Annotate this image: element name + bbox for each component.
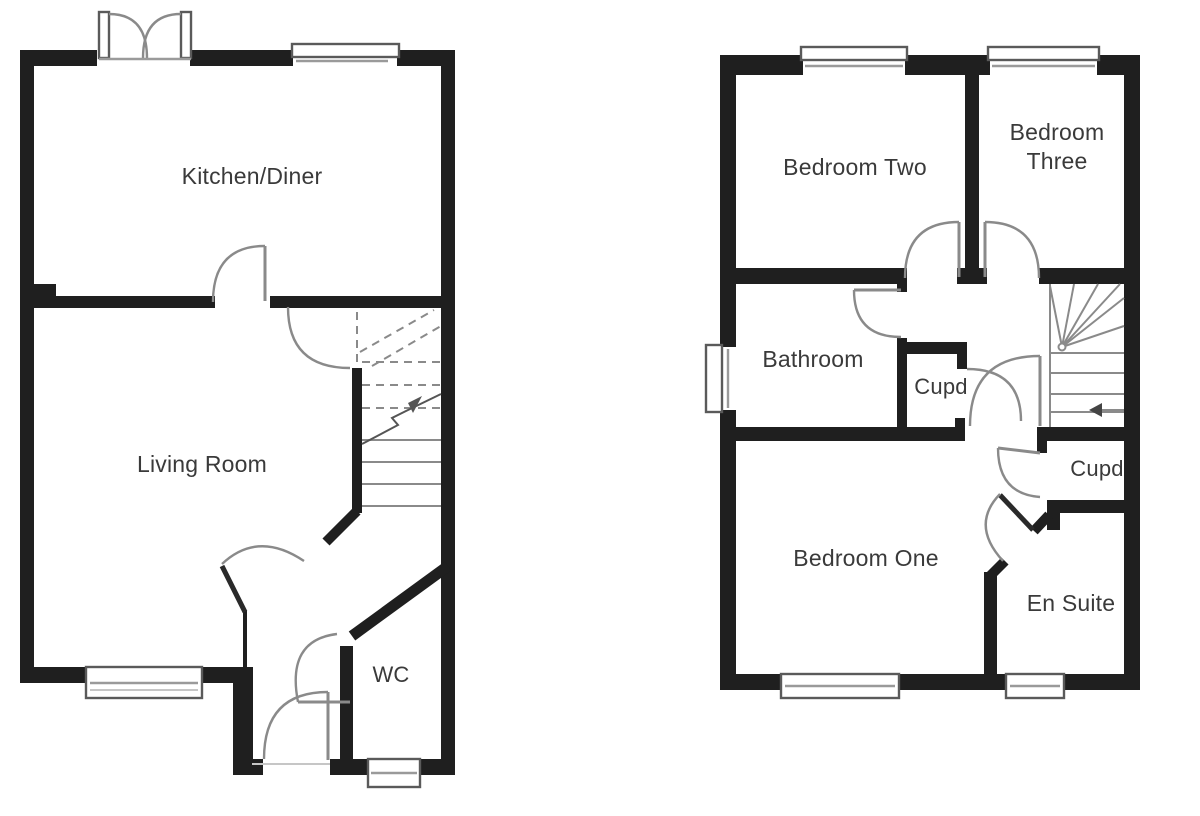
bedroom-two-door xyxy=(905,222,959,278)
first-floor-staircase xyxy=(1050,284,1124,427)
room-label-bathroom: Bathroom xyxy=(762,346,863,372)
room-label-kitchen-diner: Kitchen/Diner xyxy=(182,163,323,189)
stair-direction-arrow xyxy=(1089,403,1102,417)
room-label-bedroom-two: Bedroom Two xyxy=(783,154,927,180)
ground-floor-plan: Kitchen/Diner Living Room WC xyxy=(20,12,455,787)
ground-floor-staircase xyxy=(357,310,441,506)
bedroom-one-door xyxy=(970,356,1040,426)
floorplan-page: Kitchen/Diner Living Room WC xyxy=(0,0,1200,816)
bedroom-two-window xyxy=(801,47,907,66)
cupboard-stairs-door xyxy=(998,448,1040,497)
room-label-living-room: Living Room xyxy=(137,451,267,477)
floorplan-canvas: Kitchen/Diner Living Room WC xyxy=(0,0,1200,816)
stairs-bottom-door xyxy=(288,307,350,368)
french-door-leaf-left xyxy=(99,12,109,58)
bathroom-door xyxy=(854,290,901,337)
room-label-en-suite: En Suite xyxy=(1027,590,1116,616)
bathroom-window xyxy=(706,345,728,412)
en-suite-window xyxy=(1006,674,1064,698)
room-label-bedroom-one: Bedroom One xyxy=(793,545,938,571)
first-floor-plan: Bedroom Two Bedroom Three Bathroom Cupd … xyxy=(706,47,1140,698)
kitchen-window xyxy=(292,44,399,61)
room-label-cupboard-landing: Cupd xyxy=(914,374,967,399)
kitchen-door xyxy=(213,246,265,302)
wc-window xyxy=(368,759,420,787)
bedroom-one-window xyxy=(781,674,899,698)
bedroom-three-door xyxy=(985,222,1039,278)
living-room-door xyxy=(222,546,304,612)
en-suite-door xyxy=(986,494,1033,561)
living-room-window xyxy=(86,667,202,698)
room-label-bedroom-three-line2: Three xyxy=(1026,148,1087,174)
stair-newel-post xyxy=(1059,344,1066,351)
french-doors xyxy=(99,12,191,59)
room-label-bedroom-three-line1: Bedroom xyxy=(1010,119,1105,145)
french-door-leaf-right xyxy=(181,12,191,58)
bedroom-three-window xyxy=(988,47,1099,66)
room-label-cupboard-stairs: Cupd xyxy=(1070,456,1123,481)
room-label-wc: WC xyxy=(372,662,409,687)
